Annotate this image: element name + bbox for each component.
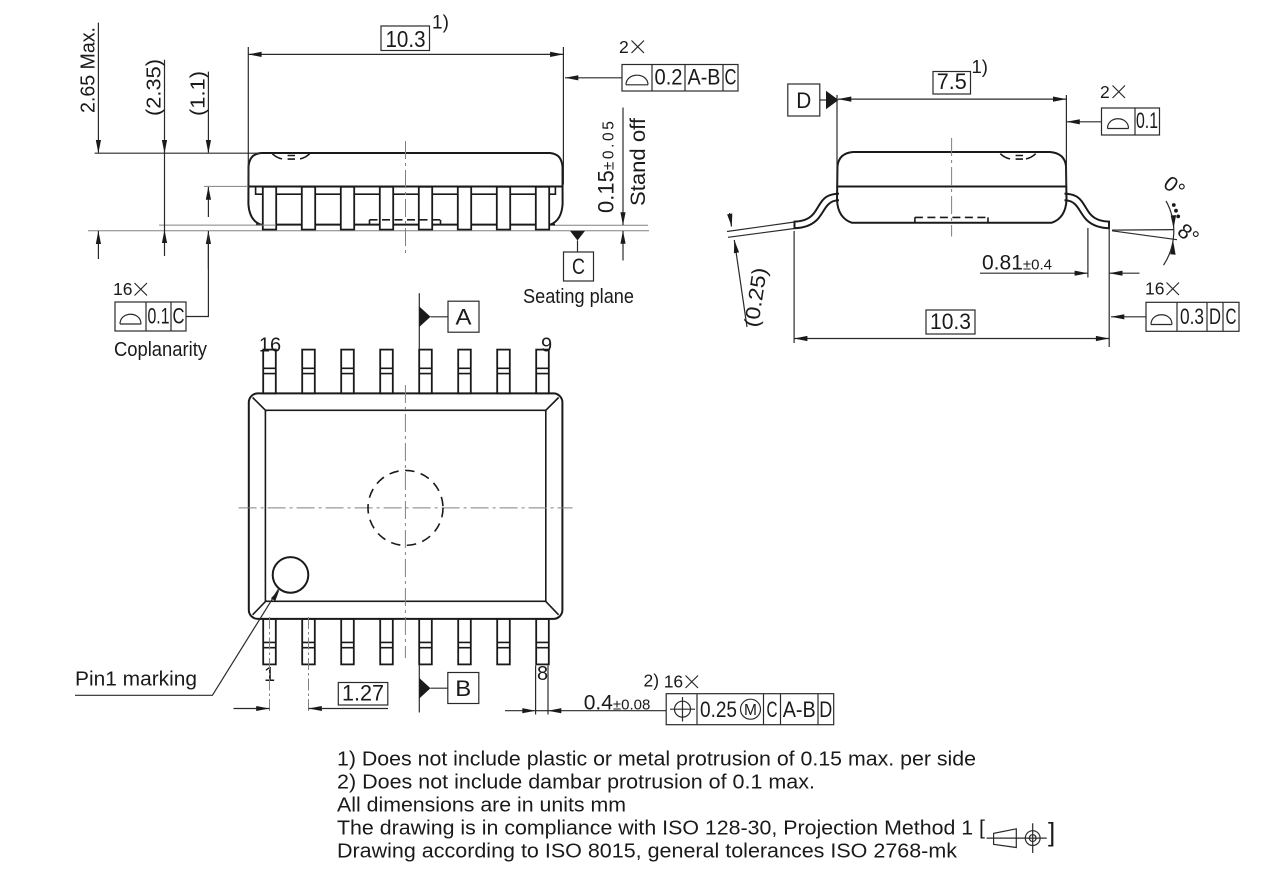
- svg-text:16: 16: [259, 335, 281, 357]
- svg-text:A-B: A-B: [688, 65, 721, 90]
- svg-text:C: C: [767, 697, 778, 722]
- svg-text:10.3: 10.3: [386, 26, 426, 52]
- svg-text:C: C: [572, 254, 585, 279]
- svg-text:9: 9: [541, 335, 552, 357]
- svg-text:Coplanarity: Coplanarity: [114, 339, 207, 361]
- svg-text:0.1: 0.1: [148, 304, 170, 329]
- svg-text:16: 16: [1145, 279, 1164, 299]
- svg-text:The drawing is in compliance w: The drawing is in compliance with ISO 12…: [337, 818, 985, 840]
- svg-text:All dimensions are in units mm: All dimensions are in units mm: [337, 795, 626, 817]
- svg-text:10.3: 10.3: [930, 309, 971, 334]
- svg-text:A-B: A-B: [783, 697, 816, 722]
- svg-text:2: 2: [619, 37, 629, 57]
- svg-text:(1.1): (1.1): [187, 71, 210, 116]
- svg-text:D: D: [819, 697, 832, 722]
- svg-text:Pin1 marking: Pin1 marking: [75, 669, 197, 691]
- svg-text:C: C: [725, 65, 737, 90]
- svg-text:D: D: [1209, 304, 1221, 329]
- svg-text:Drawing according to ISO 8015,: Drawing according to ISO 8015, general t…: [337, 841, 958, 863]
- svg-text:Seating plane: Seating plane: [523, 286, 634, 308]
- svg-text:0.3: 0.3: [1180, 304, 1204, 329]
- svg-text:(2.35): (2.35): [143, 59, 166, 116]
- svg-text:16: 16: [113, 279, 132, 299]
- svg-text:C: C: [1226, 304, 1237, 329]
- svg-text:B: B: [455, 676, 471, 701]
- svg-text:1) Does not include plastic or: 1) Does not include plastic or metal pro…: [337, 749, 976, 771]
- svg-text:1): 1): [432, 13, 449, 34]
- svg-text:2): 2): [644, 671, 660, 691]
- svg-text:16: 16: [664, 672, 683, 692]
- svg-text:D: D: [796, 88, 811, 113]
- svg-text:8: 8: [537, 663, 548, 685]
- svg-text:1.27: 1.27: [342, 681, 384, 706]
- svg-text:0.25: 0.25: [700, 697, 737, 722]
- svg-text:2) Does not include dambar pro: 2) Does not include dambar protrusion of…: [337, 772, 815, 794]
- svg-text:C: C: [173, 304, 185, 329]
- svg-text:A: A: [456, 305, 472, 330]
- svg-text:7.5: 7.5: [937, 69, 967, 94]
- svg-text:2: 2: [1100, 82, 1110, 102]
- svg-text:0.2: 0.2: [655, 65, 683, 90]
- svg-text:M: M: [744, 702, 757, 719]
- svg-text:1): 1): [972, 56, 988, 77]
- svg-text:2.65 Max.: 2.65 Max.: [77, 27, 100, 113]
- svg-text:0.1: 0.1: [1136, 108, 1158, 133]
- svg-text:Stand off: Stand off: [627, 118, 650, 206]
- svg-text:]: ]: [1048, 817, 1055, 847]
